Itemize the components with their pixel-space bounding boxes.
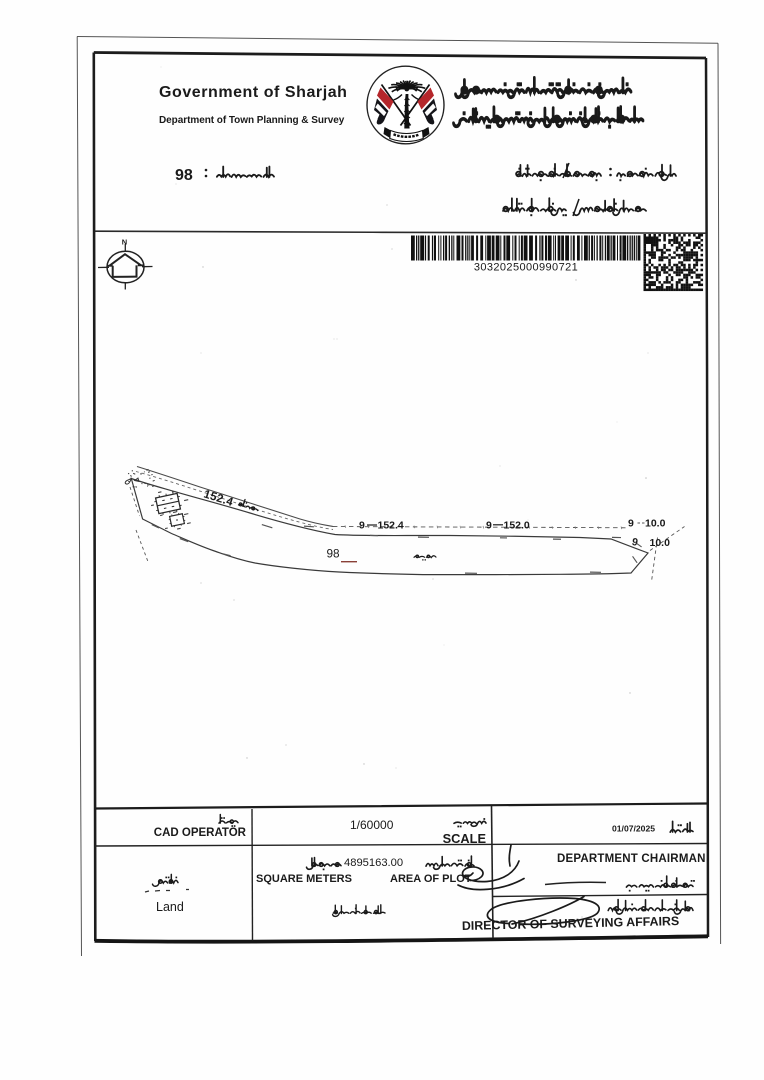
svg-text:152.0: 152.0 <box>504 520 530 532</box>
svg-text:Government of Sharjah: Government of Sharjah <box>159 84 347 101</box>
svg-text:AREA OF PLOT: AREA OF PLOT <box>390 873 472 885</box>
svg-text:98: 98 <box>175 167 193 184</box>
svg-text:98: 98 <box>327 547 341 561</box>
svg-text:1/60000: 1/60000 <box>350 818 394 832</box>
svg-text:N: N <box>122 238 127 247</box>
svg-text:Land: Land <box>156 900 184 914</box>
svg-text:3032025000990721: 3032025000990721 <box>474 262 578 274</box>
svg-text:01/07/2025: 01/07/2025 <box>612 824 655 834</box>
svg-text:SCALE: SCALE <box>443 831 487 846</box>
svg-text:9: 9 <box>486 520 492 532</box>
svg-text:SQUARE METERS: SQUARE METERS <box>256 873 352 885</box>
svg-text:DEPARTMENT CHAIRMAN: DEPARTMENT CHAIRMAN <box>557 853 706 865</box>
svg-text:Department of Town Planning &: Department of Town Planning & Survey <box>159 115 345 126</box>
svg-text:CAD OPERATOR: CAD OPERATOR <box>154 827 247 839</box>
svg-text:9: 9 <box>628 518 634 530</box>
svg-text:10.0: 10.0 <box>650 537 671 549</box>
svg-text:152.4: 152.4 <box>378 520 404 532</box>
svg-text:10.0: 10.0 <box>645 518 666 530</box>
svg-text:9: 9 <box>359 520 365 532</box>
svg-text:4895163.00: 4895163.00 <box>344 857 403 869</box>
